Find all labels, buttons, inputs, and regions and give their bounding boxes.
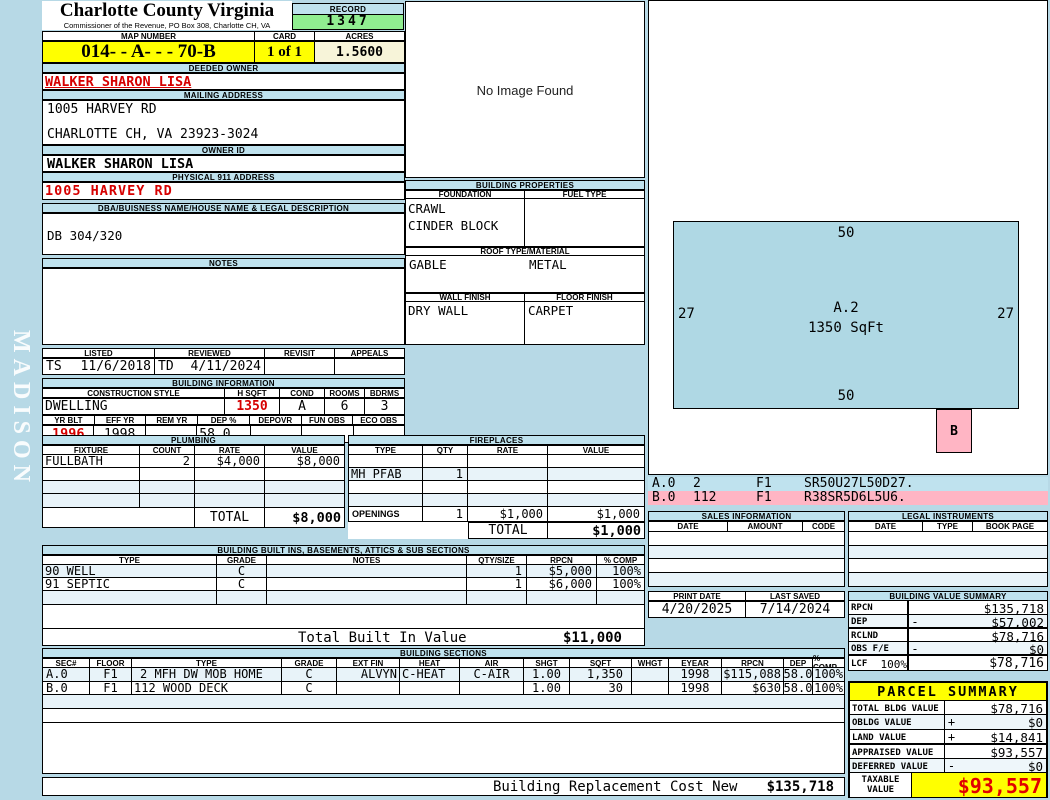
mailing-address-box: 1005 HARVEY RD CHARLOTTE CH, VA 23923-30… [42,100,405,145]
builtins-col-comp: % COMP [597,555,645,565]
sales-rows [648,532,845,587]
sales-col-amount: AMOUNT [728,521,803,532]
revisit-label: REVISIT [265,348,335,358]
depovr-label: DEPOVR [250,415,302,425]
section-area-sqft: 1350 SqFt [674,320,1018,336]
fireplaces-rows: MH PFAB 1 OPENINGS 1 $1,000 $1,000 [348,455,645,522]
fuel-type-value [526,199,646,246]
taxable-row: TAXABLE VALUE $93,557 [850,773,1046,797]
deeded-owner-label: DEEDED OWNER [42,63,405,73]
table-row [43,695,844,709]
sales-title: SALES INFORMATION [648,511,845,521]
parcel-row: OBLDG VALUE + $0 [850,715,1046,729]
building-information-title: BUILDING INFORMATION [42,378,405,388]
dba-box: DB 304/320 [42,213,405,255]
plumbing-total-label: TOTAL [195,507,265,528]
replacement-cost-label: Building Replacement Cost New [493,779,737,795]
card-value: 1 of 1 [255,41,315,63]
segment-size: 112 [693,491,756,505]
listed-label: LISTED [42,348,155,358]
foundation-label: FOUNDATION [405,190,525,199]
fireplaces-total-value: $1,000 [548,522,645,539]
whgt-col: WHGT [632,658,669,668]
segment-floor: F1 [756,477,804,491]
type-col: TYPE [132,658,282,668]
plumbing-col-count: COUNT [140,445,195,455]
segment-code: SR50U27L50D27. [804,477,914,491]
commissioner-line: Commissioner of the Revenue, PO Box 308,… [42,21,292,30]
finish-box: DRY WALL CARPET [405,302,645,345]
card-label: CARD [255,31,315,41]
remyr-label: REM YR [146,415,198,425]
segment-row-b: B.0 112 F1 R38SR5D6L5U6. [648,491,1048,505]
fireplaces-col-type: TYPE [348,445,423,455]
physical-address-label: PHYSICAL 911 ADDRESS [42,172,405,182]
reviewed-label: REVIEWED [155,348,265,358]
table-row: B.0 F1 112 WOOD DECK C 1.00 30 1998 $630… [43,682,844,696]
built-ins-title: BUILDING BUILT INS, BASEMENTS, ATTICS & … [42,545,645,555]
builtins-col-rpcn: RPCN [527,555,597,565]
replacement-cost-row: Building Replacement Cost New $135,718 [42,777,845,796]
plumbing-title: PLUMBING [42,435,345,445]
built-ins-rows: 90 WELL C 1 $5,000 100% 91 SEPTIC C 1 $6… [42,565,645,605]
acres-label: ACRES [315,31,405,41]
builtins-col-qty: QTY/SIZE [467,555,527,565]
mailing-address-label: MAILING ADDRESS [42,90,405,100]
segment-row-a: A.0 2 F1 SR50U27L50D27. [648,477,1048,491]
dba-label: DBA/BUISNESS NAME/HOUSE NAME & LEGAL DES… [42,203,405,213]
table-row [43,709,844,723]
owner-id-label: OWNER ID [42,145,405,155]
sqft-col: SQFT [570,658,632,668]
rooms-label: ROOMS [325,388,365,398]
parcel-summary-title: PARCEL SUMMARY [850,683,1046,701]
plumbing-col-value: VALUE [265,445,345,455]
ecoobs-label: ECO OBS [353,415,405,425]
construction-style-value: DWELLING [42,398,225,415]
table-row [849,573,1047,587]
table-row [649,559,844,573]
fireplaces-col-rate: RATE [468,445,548,455]
print-date-value: 4/20/2025 [648,601,746,618]
taxable-value: $93,557 [912,773,1046,797]
built-ins-total-row: Total Built In Value $11,000 [42,628,645,646]
dep-label: DEP % [198,415,250,425]
table-row [849,559,1047,573]
roof-box: GABLE METAL [405,256,645,293]
summary-row: RCLND $78,716 [849,628,1047,642]
building-sections-title: BUILDING SECTIONS [42,648,845,658]
foundation-box: CRAWL CINDER BLOCK [405,199,645,247]
summary-row: OBS F/E - $0 [849,642,1047,656]
rooms-value: 6 [325,398,365,415]
table-row [649,532,844,546]
map-number-value: 014- - A- - - 70-B [42,41,255,63]
grade-col: GRADE [282,658,337,668]
table-row [349,481,644,494]
roof-material-value: METAL [529,257,567,272]
comp-col: % COMP [813,658,845,668]
funobs-label: FUN OBS [302,415,354,425]
parcel-summary: PARCEL SUMMARY TOTAL BLDG VALUE $78,716 … [848,681,1048,798]
deeded-owner-value: WALKER SHARON LISA [42,73,405,90]
taxable-label: TAXABLE VALUE [850,773,912,797]
table-row [349,494,644,507]
floor-col: FLOOR [90,658,132,668]
rpcn-col: RPCN [722,658,784,668]
sketch-section-a: 50 50 27 27 A.2 1350 SqFt [673,221,1019,409]
plumbing-col-fixture: FIXTURE [42,445,140,455]
physical-address-value: 1005 HARVEY RD [42,182,405,200]
fuel-type-label: FUEL TYPE [525,190,645,199]
summary-row: LCF 100% $78,716 [849,655,1047,670]
table-row [649,546,844,560]
legal-col-date: DATE [848,521,923,532]
shgt-col: SHGT [524,658,570,668]
replacement-cost-value: $135,718 [767,779,834,795]
builtins-col-notes: NOTES [267,555,467,565]
parcel-row: TOTAL BLDG VALUE $78,716 [850,701,1046,715]
plumbing-rows: FULLBATH 2 $4,000 $8,000 [42,455,345,508]
table-row [849,532,1047,546]
notes-box [42,268,405,345]
table-row: 91 SEPTIC C 1 $6,000 100% [43,578,644,591]
value-summary-table: RPCN $135,718 DEP - $57,002 RCLND $78,71… [848,601,1048,671]
builtins-col-grade: GRADE [217,555,267,565]
sec-col: SEC# [42,658,90,668]
map-number-label: MAP NUMBER [42,31,255,41]
revisit-value [265,358,335,375]
building-properties-title: BUILDING PROPERTIES [405,180,645,190]
fireplaces-title: FIREPLACES [348,435,645,445]
floor-finish-value: CARPET [526,302,646,344]
foundation-value-2: CINDER BLOCK [408,217,522,234]
last-saved-label: LAST SAVED [746,591,845,601]
parcel-row: DEFERRED VALUE - $0 [850,759,1046,773]
table-row: MH PFAB 1 [349,468,644,481]
plumbing-total-value: $8,000 [265,507,345,528]
dep-col: DEP [784,658,813,668]
owner-id-value: WALKER SHARON LISA [42,155,405,172]
cond-value: A [280,398,325,415]
building-sections-rows: A.0 F1 2 MFH DW MOB HOME C ALVYN C-HEAT … [42,668,845,723]
reviewed-value: TD 4/11/2024 [155,358,265,375]
mailing-line2: CHARLOTTE CH, VA 23923-3024 [47,127,258,142]
yrblt-label: YR BLT [42,415,95,425]
hsqft-value: 1350 [225,398,280,415]
listed-by: TS [46,359,62,374]
listed-value: TS 11/6/2018 [42,358,155,375]
legal-col-bookpage: BOOK PAGE [973,521,1048,532]
segment-floor: F1 [756,491,804,505]
table-row: FULLBATH 2 $4,000 $8,000 [43,455,344,468]
wall-finish-value: DRY WALL [406,302,525,344]
notes-label: NOTES [42,258,405,268]
table-row: A.0 F1 2 MFH DW MOB HOME C ALVYN C-HEAT … [43,668,844,682]
value-summary-title: BUILDING VALUE SUMMARY [848,591,1048,601]
parcel-row: LAND VALUE + $14,841 [850,730,1046,744]
bdrms-value: 3 [365,398,405,415]
bdrms-label: BDRMS [365,388,405,398]
legal-rows [848,532,1048,587]
extfin-col: EXT FIN [337,658,400,668]
reviewed-by: TD [158,359,174,374]
sales-col-code: CODE [803,521,845,532]
table-row [849,546,1047,560]
cond-label: COND [280,388,325,398]
fireplaces-col-value: VALUE [548,445,645,455]
listed-date: 11/6/2018 [81,359,151,374]
segment-sec: B.0 [648,491,693,505]
roof-type-value: GABLE [409,257,447,272]
photo-panel: No Image Found [405,1,645,178]
appeals-label: APPEALS [335,348,405,358]
table-row: 90 WELL C 1 $5,000 100% [43,565,644,578]
print-date-label: PRINT DATE [648,591,746,601]
sketch-section-b: B [936,409,972,453]
sales-col-date: DATE [648,521,728,532]
air-col: AIR [460,658,524,668]
table-row [43,468,344,481]
county-watermark: MADISON [7,330,34,488]
summary-row: RPCN $135,718 [849,601,1047,615]
construction-style-label: CONSTRUCTION STYLE [42,388,225,398]
table-row [349,455,644,468]
dimension-bottom: 50 [674,388,1018,404]
built-ins-total-value: $11,000 [563,630,622,646]
acres-value: 1.5600 [315,41,405,63]
title-block: Charlotte County Virginia Commissioner o… [42,1,292,30]
plumbing-col-rate: RATE [195,445,265,455]
wall-finish-label: WALL FINISH [405,293,525,302]
reviewed-date: 4/11/2024 [191,359,261,374]
appeals-value [335,358,405,375]
no-image-text: No Image Found [406,83,644,98]
table-row [43,494,344,507]
dba-value: DB 304/320 [47,228,122,243]
summary-row: DEP - $57,002 [849,615,1047,629]
last-saved-value: 7/14/2024 [746,601,845,618]
eyear-col: EYEAR [669,658,722,668]
parcel-row: APPRAISED VALUE $93,557 [850,744,1046,758]
hsqft-label: H SQFT [225,388,280,398]
floor-finish-label: FLOOR FINISH [525,293,645,302]
foundation-value-1: CRAWL [408,200,522,217]
dimension-top: 50 [674,225,1018,241]
fireplaces-col-qty: QTY [423,445,468,455]
heat-col: HEAT [400,658,460,668]
legal-col-type: TYPE [923,521,973,532]
built-ins-total-label: Total Built In Value [298,630,467,646]
mailing-line1: 1005 HARVEY RD [47,102,157,117]
table-row [43,591,644,604]
record-label: RECORD [292,3,404,15]
builtins-col-type: TYPE [42,555,217,565]
segment-sec: A.0 [648,477,693,491]
record-block: RECORD 1347 [292,3,404,30]
county-title: Charlotte County Virginia [42,1,292,21]
segment-code: R38SR5D6L5U6. [804,491,906,505]
record-value: 1347 [292,15,404,30]
fireplaces-total-label: TOTAL [468,522,548,539]
legal-title: LEGAL INSTRUMENTS [848,511,1048,521]
section-area-label: A.2 [674,300,1018,316]
effyr-label: EFF YR [95,415,147,425]
table-row [649,573,844,587]
table-row: OPENINGS 1 $1,000 $1,000 [349,507,644,521]
segment-size: 2 [693,477,756,491]
table-row [43,481,344,494]
roof-label: ROOF TYPE/MATERIAL [405,247,645,256]
sketch-panel: 50 50 27 27 A.2 1350 SqFt B [648,0,1048,475]
